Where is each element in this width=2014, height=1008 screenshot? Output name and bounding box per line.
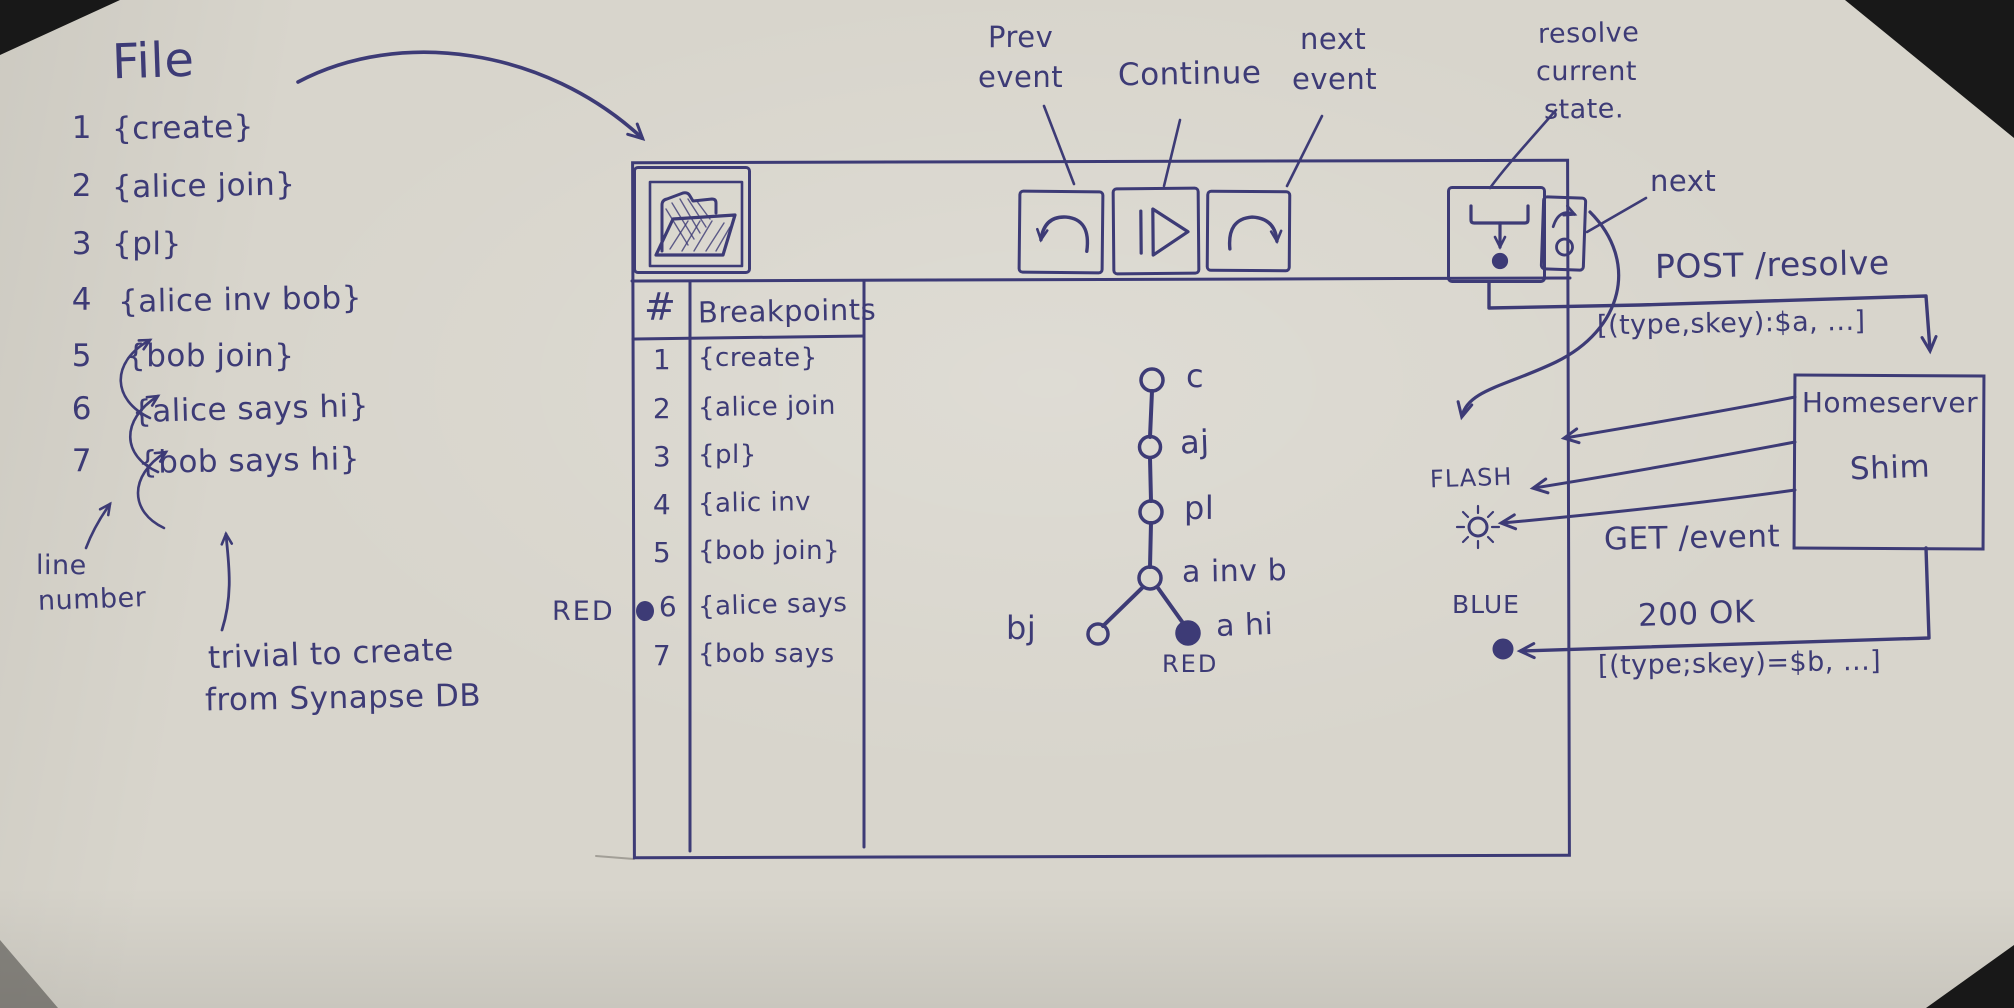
note-arrow: [222, 534, 229, 630]
file-line-text: {alice inv bob}: [118, 282, 362, 319]
flash-label: FLASH: [1430, 465, 1513, 493]
file-line-text: {bob join}: [126, 340, 294, 373]
undo-arrow-icon: [1021, 193, 1108, 278]
row-num: 7: [640, 641, 684, 670]
row-text: {create}: [698, 345, 818, 372]
prev-event-button[interactable]: [1018, 190, 1105, 275]
homeserver-shim-label: Shim: [1795, 449, 1984, 488]
line-number-annotation: line: [36, 552, 87, 580]
file-line-number: 5: [52, 340, 92, 373]
resolve-callout: resolve: [1538, 19, 1640, 49]
step-arrow-icon: [1543, 198, 1591, 275]
file-line-text: {pl}: [112, 228, 182, 261]
photo-corner-bottom-left: [0, 940, 58, 1008]
row-text: {bob says: [698, 641, 835, 668]
synapse-note: from Synapse DB: [205, 680, 482, 717]
post-request-label: POST /resolve: [1655, 246, 1890, 285]
row-num: 1: [640, 345, 684, 374]
file-heading: File: [111, 35, 195, 88]
resolve-current-state-button[interactable]: [1447, 186, 1546, 283]
row-text: {bob join}: [698, 538, 840, 565]
row-num: 2: [640, 394, 684, 423]
dag-label: pl: [1184, 492, 1214, 526]
open-folder-icon: [636, 169, 754, 277]
open-file-button[interactable]: [633, 166, 751, 274]
continue-callout: Continue: [1118, 57, 1262, 92]
row-num: 3: [640, 442, 684, 471]
continue-button[interactable]: [1112, 187, 1201, 276]
photo-corner-top-right: [1845, 0, 2014, 138]
line-number-arrow: [86, 504, 110, 548]
dag-label: a hi: [1215, 609, 1273, 642]
file-line-text: {create}: [112, 111, 254, 146]
file-to-window-arrow: [298, 52, 642, 138]
table-header-breakpoints: Breakpoints: [698, 294, 877, 328]
synapse-note: trivial to create: [208, 634, 455, 675]
row-num: 4: [640, 490, 684, 519]
file-line-number: 3: [52, 228, 92, 261]
table-header-num: #: [644, 288, 676, 328]
redo-arrow-icon: [1209, 193, 1295, 276]
red-marker-label: RED: [552, 598, 615, 626]
file-line-text: {alice says hi}: [132, 390, 370, 429]
get-request-label: GET /event: [1604, 520, 1781, 556]
merge-arrow-icon: [1450, 189, 1549, 286]
next-step-callout: next: [1650, 166, 1716, 196]
post-payload-label: [(type,skey):$a, ...]: [1597, 308, 1866, 341]
file-line-number: 6: [52, 393, 92, 426]
line-number-annotation: number: [38, 584, 147, 616]
row-text: {alice join: [698, 393, 836, 423]
photo-corner-top-left: [0, 0, 120, 55]
blue-label: BLUE: [1452, 592, 1520, 618]
dag-label: a inv b: [1182, 555, 1288, 588]
homeserver-shim-label: Homeserver: [1796, 388, 1984, 417]
row-text: {alice says: [698, 590, 848, 621]
prev-event-callout: Prev: [988, 22, 1053, 52]
dag-red-label: RED: [1162, 652, 1218, 677]
pencil-tick: [596, 856, 634, 859]
resolve-callout: state.: [1544, 95, 1624, 125]
resolve-callout: current: [1536, 58, 1637, 86]
dag-label: bj: [1006, 612, 1036, 646]
prev-event-callout: event: [978, 62, 1063, 92]
next-event-callout: next: [1300, 24, 1366, 54]
dag-label: c: [1186, 360, 1204, 394]
photo-corner-bottom-right: [1926, 945, 2014, 1008]
row-num: 6: [646, 592, 690, 621]
next-step-button[interactable]: [1540, 195, 1588, 272]
file-line-text: {alice join}: [112, 168, 296, 204]
next-event-callout: event: [1292, 64, 1377, 94]
file-line-number: 2: [52, 170, 92, 203]
row-text: {pl}: [698, 442, 757, 469]
pause-play-icon: [1115, 190, 1204, 279]
response-payload-label: [(type;skey)=$b, ...]: [1598, 648, 1882, 681]
sketch-photo: File 1 {create} 2 {alice join} 3 {pl} 4 …: [0, 0, 2014, 1008]
response-status-label: 200 OK: [1637, 596, 1755, 633]
next-event-button[interactable]: [1206, 190, 1292, 273]
file-line-number: 7: [52, 445, 92, 478]
row-num: 5: [640, 538, 684, 567]
file-line-number: 4: [52, 284, 92, 317]
file-line-number: 1: [52, 112, 92, 145]
file-line-text: {bob says hi}: [138, 443, 360, 479]
row-text: {alic inv: [698, 489, 812, 518]
dag-label: aj: [1179, 425, 1210, 460]
